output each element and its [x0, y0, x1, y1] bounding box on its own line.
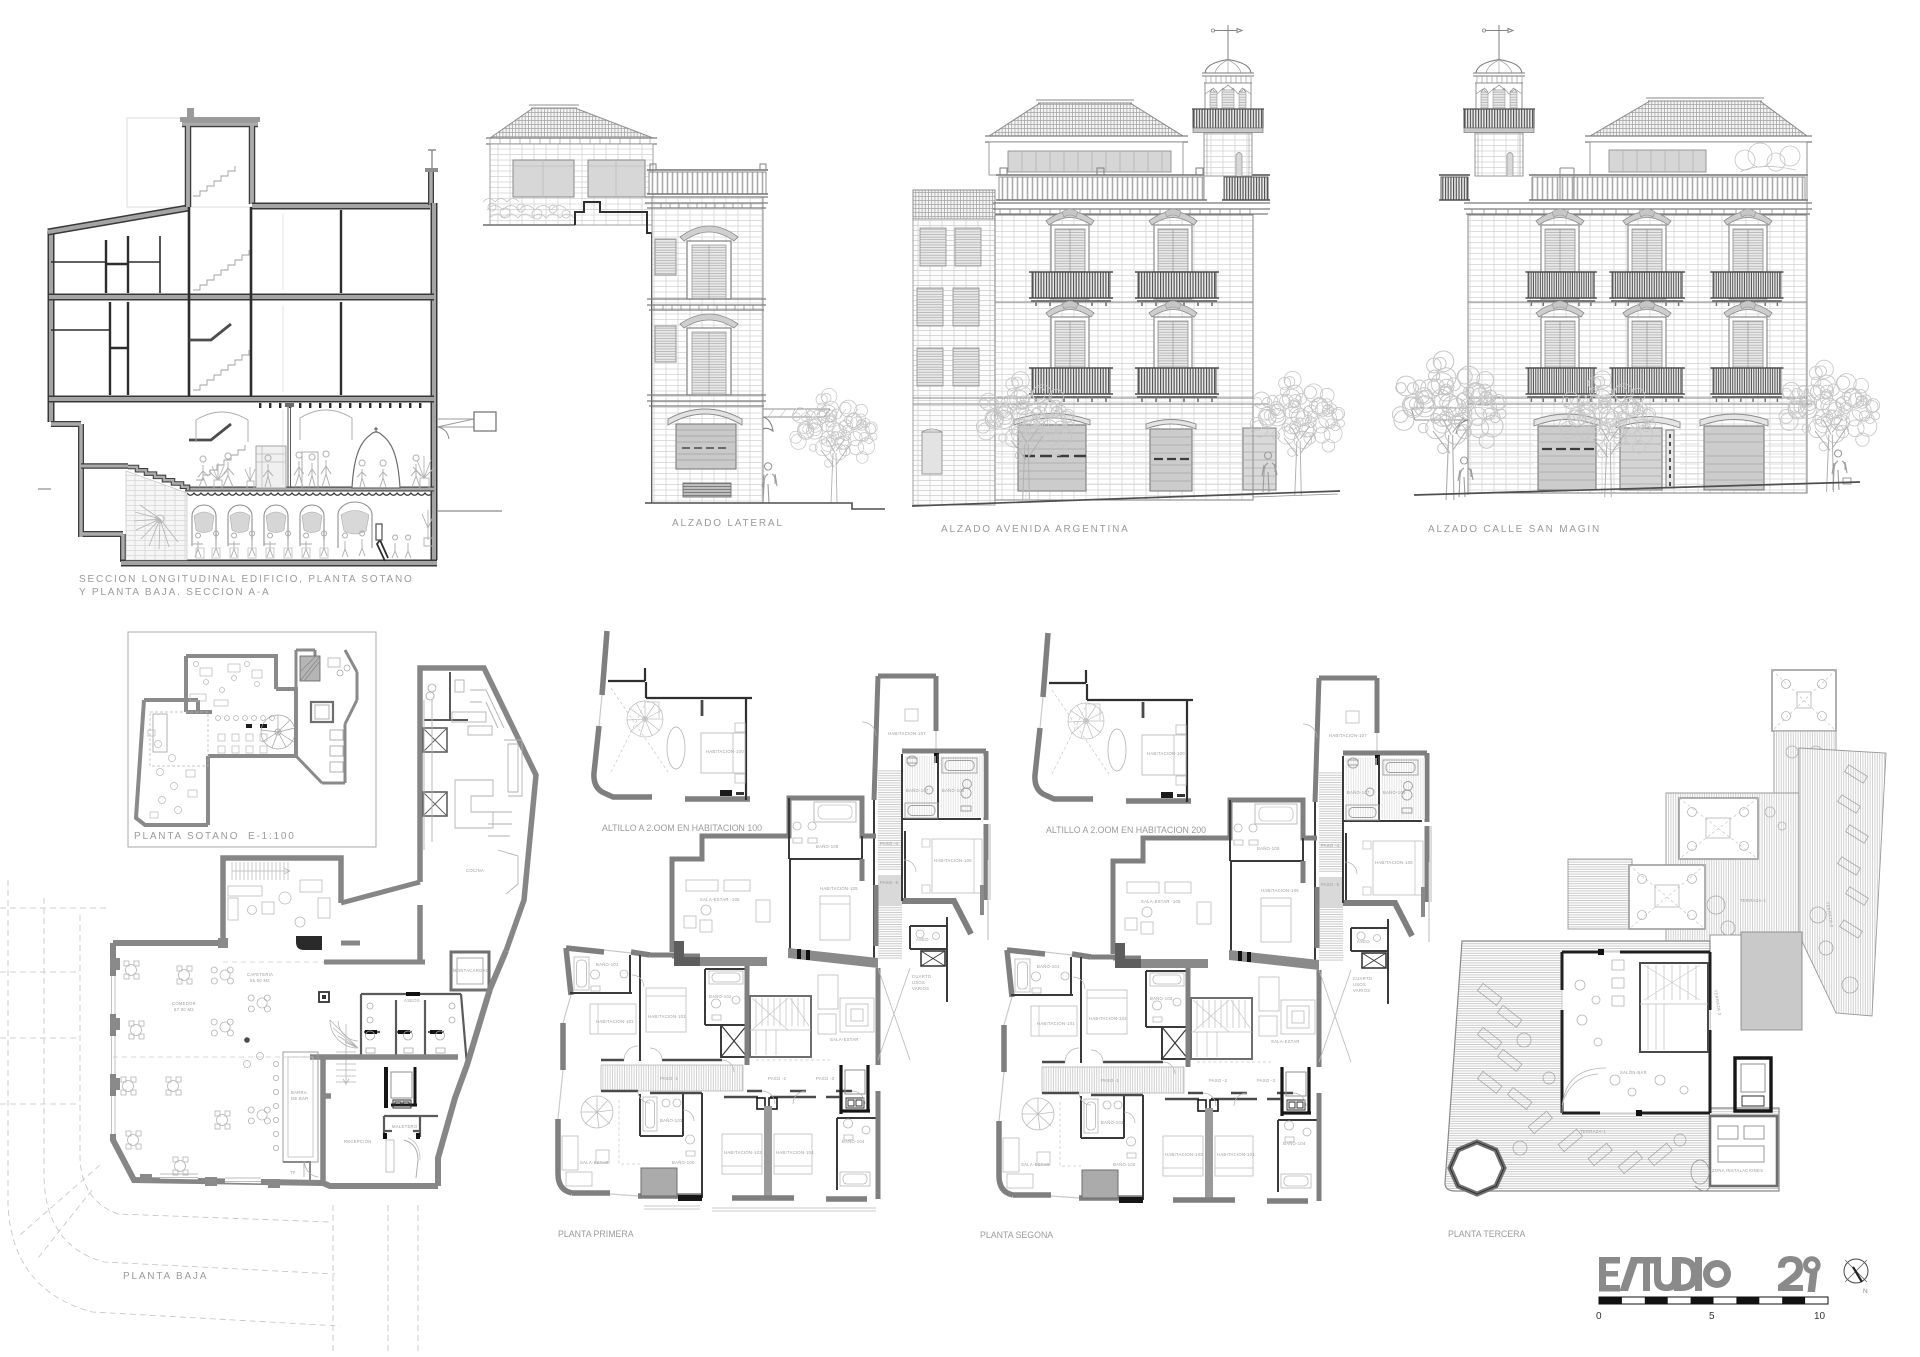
svg-text:ALTILLO A 2.OOM EN HABITACION: ALTILLO A 2.OOM EN HABITACION 100 [602, 823, 762, 833]
svg-text:SALA-ESTAR: SALA-ESTAR [580, 1160, 609, 1165]
svg-text:BAÑO-100: BAÑO-100 [672, 1160, 695, 1165]
svg-text:RECEPCIÓN: RECEPCIÓN [344, 1139, 372, 1144]
svg-text:PASO -5: PASO -5 [880, 880, 899, 885]
svg-text:PLANTA SEGONA: PLANTA SEGONA [980, 1230, 1053, 1240]
svg-text:SALA-ESTAR: SALA-ESTAR [830, 1037, 859, 1042]
svg-text:HABITACION-105: HABITACION-105 [820, 886, 858, 891]
svg-text:PLANTA PRIMERA: PLANTA PRIMERA [558, 1229, 634, 1239]
svg-text:HABITACION-106: HABITACION-106 [934, 858, 972, 863]
svg-text:55.00 M2: 55.00 M2 [250, 978, 270, 983]
svg-text:5: 5 [1709, 1311, 1715, 1322]
svg-text:ALZADO AVENIDA ARGENTINA: ALZADO AVENIDA ARGENTINA [941, 524, 1130, 535]
svg-text:MONTACARGAS: MONTACARGAS [453, 968, 489, 973]
svg-text:USOS: USOS [912, 980, 925, 985]
svg-text:BAÑO-107: BAÑO-107 [906, 788, 929, 793]
svg-text:PASO -3: PASO -3 [816, 1076, 835, 1081]
svg-text:N: N [1863, 1288, 1868, 1295]
svg-text:PLANTA BAJA: PLANTA BAJA [123, 1271, 208, 1282]
svg-text:HABITACION-104: HABITACION-104 [776, 1150, 814, 1155]
svg-text:VARIOS: VARIOS [912, 986, 929, 991]
svg-text:HABITACION-100: HABITACION-100 [706, 749, 744, 754]
svg-text:HABITACION-107: HABITACION-107 [888, 731, 926, 736]
svg-text:TERRAZA-1: TERRAZA-1 [1580, 1129, 1606, 1134]
svg-text:ASEOS: ASEOS [404, 998, 420, 1003]
svg-text:PLANTA TERCERA: PLANTA TERCERA [1448, 1229, 1526, 1239]
svg-text:PASO -4: PASO -4 [880, 841, 899, 846]
svg-text:DE BAR: DE BAR [291, 1096, 308, 1101]
svg-text:ALTILLO A 2.OOM EN HABITACION: ALTILLO A 2.OOM EN HABITACION 200 [1046, 825, 1206, 835]
svg-text:57.00 M2: 57.00 M2 [174, 1007, 194, 1012]
svg-text:BAÑO-104: BAÑO-104 [842, 1139, 865, 1144]
svg-text:HABITACION-102: HABITACION-102 [648, 1014, 686, 1019]
svg-text:COCINA: COCINA [466, 868, 484, 873]
svg-text:ZONA INSTALACIONES: ZONA INSTALACIONES [1712, 1168, 1763, 1173]
svg-text:SECCION LONGITUDINAL EDIFICIO,: SECCION LONGITUDINAL EDIFICIO, PLANTA SO… [79, 574, 414, 585]
svg-text:BAÑO-106: BAÑO-106 [942, 788, 965, 793]
svg-text:COMEDOR: COMEDOR [172, 1001, 196, 1006]
svg-text:ASEO: ASEO [916, 937, 929, 942]
svg-text:BAÑO-103: BAÑO-103 [660, 1118, 683, 1123]
svg-text:CUARTO: CUARTO [912, 974, 932, 979]
svg-text:Y PLANTA BAJA. SECCION A-A: Y PLANTA BAJA. SECCION A-A [79, 587, 270, 598]
svg-text:BAÑO-101: BAÑO-101 [596, 962, 619, 967]
svg-text:10: 10 [1814, 1311, 1826, 1322]
svg-text:HABITACION-103: HABITACION-103 [724, 1150, 762, 1155]
svg-text:PLANTA SOTANO: PLANTA SOTANO [134, 831, 239, 842]
svg-text:MALETERO: MALETERO [392, 1124, 418, 1129]
svg-text:BARRA: BARRA [291, 1090, 307, 1095]
svg-text:PASO -2: PASO -2 [768, 1076, 787, 1081]
svg-text:0: 0 [1596, 1311, 1602, 1322]
svg-text:TERRAZA-2: TERRAZA-2 [1740, 898, 1766, 903]
svg-text:ALZADO CALLE SAN MAGIN: ALZADO CALLE SAN MAGIN [1428, 524, 1601, 535]
svg-text:PASO -1: PASO -1 [660, 1076, 679, 1081]
svg-text:BAÑO-102: BAÑO-102 [709, 994, 732, 999]
svg-text:SALA-ESTAR -105: SALA-ESTAR -105 [700, 897, 740, 902]
svg-text:HABITACION-101: HABITACION-101 [596, 1019, 634, 1024]
svg-text:E-1:100: E-1:100 [248, 831, 296, 842]
svg-text:SALÓN-BAR: SALÓN-BAR [1620, 1070, 1647, 1075]
svg-text:ALZADO LATERAL: ALZADO LATERAL [672, 518, 784, 529]
svg-text:TF: TF [290, 1170, 296, 1175]
svg-text:BAÑO-105: BAÑO-105 [816, 844, 839, 849]
svg-text:CAFETERIA: CAFETERIA [247, 972, 273, 977]
